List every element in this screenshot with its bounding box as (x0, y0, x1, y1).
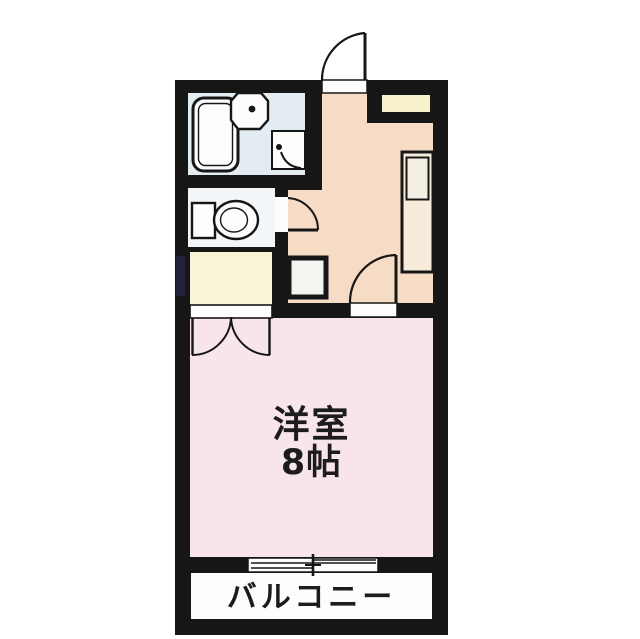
closet-floor (190, 252, 272, 305)
floorplan-page: 洋室 8帖 バルコニー (0, 0, 640, 639)
main-room-size: 8帖 (190, 444, 433, 482)
kitchen-counter-icon (402, 152, 433, 272)
toilet-icon (192, 201, 258, 239)
balcony-sliding-window-icon (248, 554, 378, 576)
balcony-label: バルコニー (190, 577, 433, 619)
bathroom-door-icon (272, 131, 305, 169)
entrance-door-icon (322, 33, 367, 93)
washing-machine-space-icon (289, 258, 326, 297)
floorplan-drawing (0, 0, 640, 639)
main-room-label: 洋室 8帖 (190, 406, 433, 482)
main-room-name: 洋室 (190, 406, 433, 444)
wash-basin-icon (231, 93, 268, 129)
shoe-cabinet (382, 95, 430, 112)
wall-print-artifact (176, 256, 185, 296)
